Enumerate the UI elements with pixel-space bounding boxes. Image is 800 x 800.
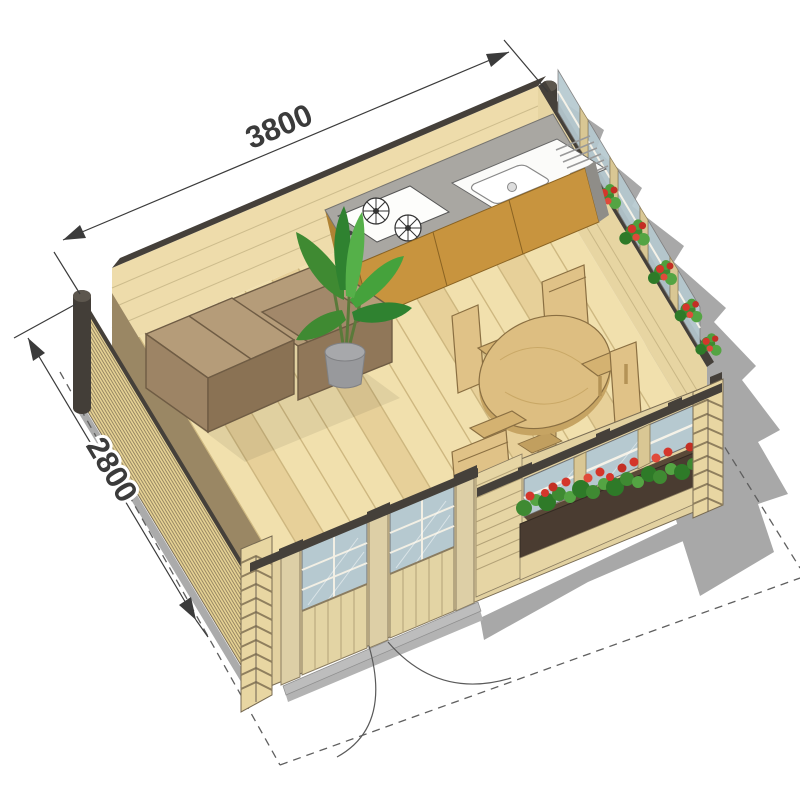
burner-left (363, 198, 389, 224)
width-dimension-label: 3800 (240, 97, 317, 156)
arrow-right-icon (486, 52, 509, 67)
sink-drain (508, 183, 517, 192)
west-corner-post (73, 290, 91, 414)
arrow-top-icon (28, 338, 45, 361)
burner-right (395, 215, 421, 241)
floor-plan-illustration: 3800 2800 (0, 0, 800, 800)
arrow-left-icon (63, 225, 86, 240)
isometric-cabin-drawing: 3800 2800 (0, 0, 800, 800)
